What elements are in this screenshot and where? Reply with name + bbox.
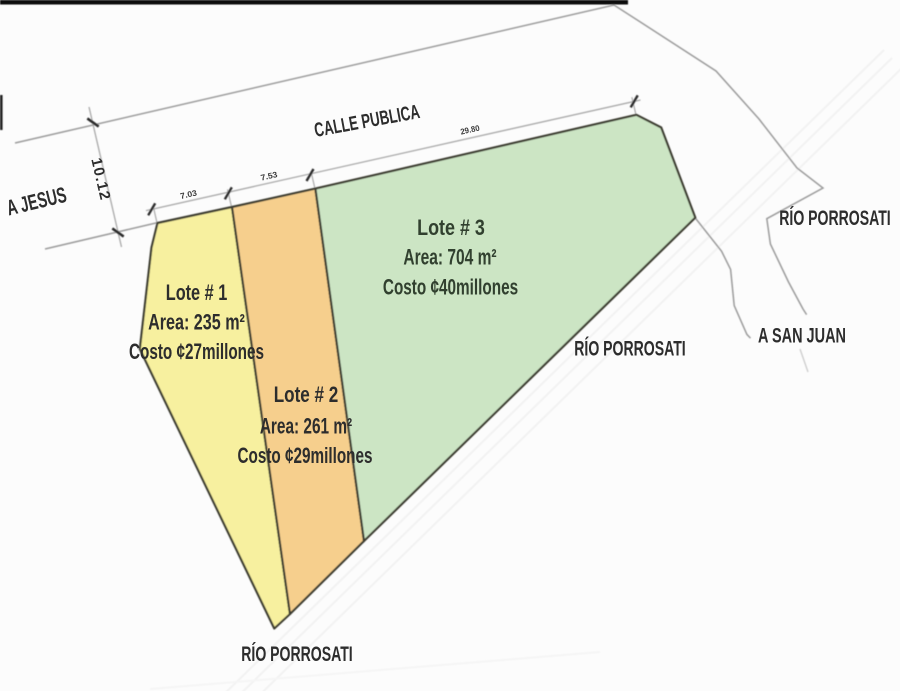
svg-text:Area: 235 m²: Area: 235 m²	[148, 311, 245, 335]
svg-text:7.53: 7.53	[260, 169, 279, 182]
svg-text:Costo ¢29millones: Costo ¢29millones	[237, 444, 372, 468]
svg-text:Costo ¢27millones: Costo ¢27millones	[129, 340, 264, 364]
svg-text:Lote # 3: Lote # 3	[417, 216, 485, 240]
svg-text:Area: 704 m²: Area: 704 m²	[403, 246, 496, 270]
svg-text:RÍO PORROSATI: RÍO PORROSATI	[779, 205, 890, 230]
svg-text:Lote # 1: Lote # 1	[166, 280, 228, 305]
svg-text:RÍO PORROSATI: RÍO PORROSATI	[241, 641, 352, 666]
svg-text:Lote # 2: Lote # 2	[274, 383, 339, 408]
svg-text:29.80: 29.80	[459, 123, 481, 136]
svg-text:Area: 261 m²: Area: 261 m²	[260, 415, 352, 439]
svg-text:CALLE PUBLICA: CALLE PUBLICA	[312, 100, 421, 141]
svg-text:A JESUS: A JESUS	[4, 182, 69, 220]
svg-text:10.12: 10.12	[87, 156, 113, 202]
svg-text:A SAN JUAN: A SAN JUAN	[758, 324, 846, 347]
svg-text:7.03: 7.03	[179, 188, 198, 201]
svg-text:Costo ¢40millones: Costo ¢40millones	[383, 276, 518, 300]
svg-text:RÍO PORROSATI: RÍO PORROSATI	[574, 336, 685, 361]
